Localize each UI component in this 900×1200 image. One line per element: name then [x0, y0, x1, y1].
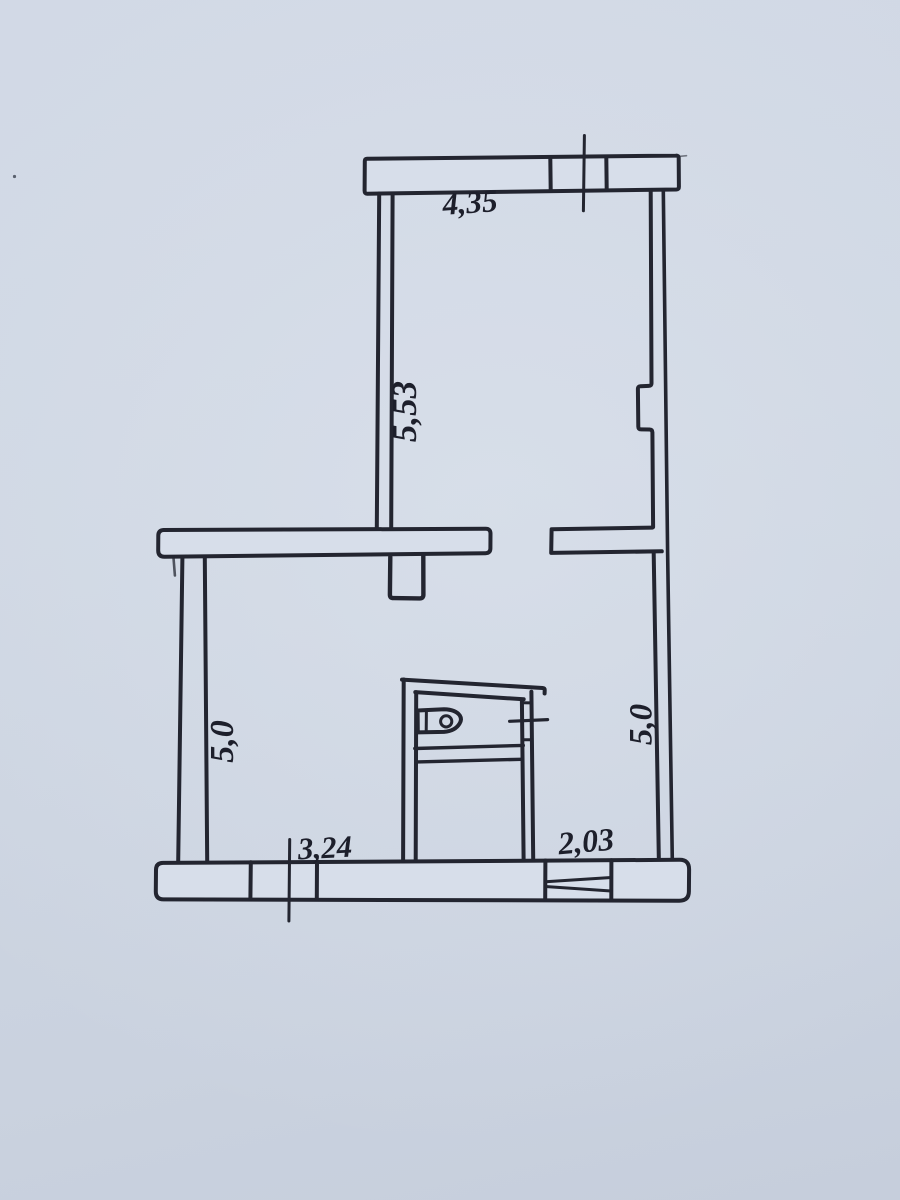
- svg-text:2,03: 2,03: [556, 821, 616, 862]
- svg-text:5,0: 5,0: [204, 720, 241, 763]
- svg-text:3,24: 3,24: [296, 829, 353, 867]
- svg-text:5,0: 5,0: [624, 704, 660, 745]
- svg-text:4,35: 4,35: [440, 183, 498, 222]
- svg-text:5,53: 5,53: [385, 381, 424, 442]
